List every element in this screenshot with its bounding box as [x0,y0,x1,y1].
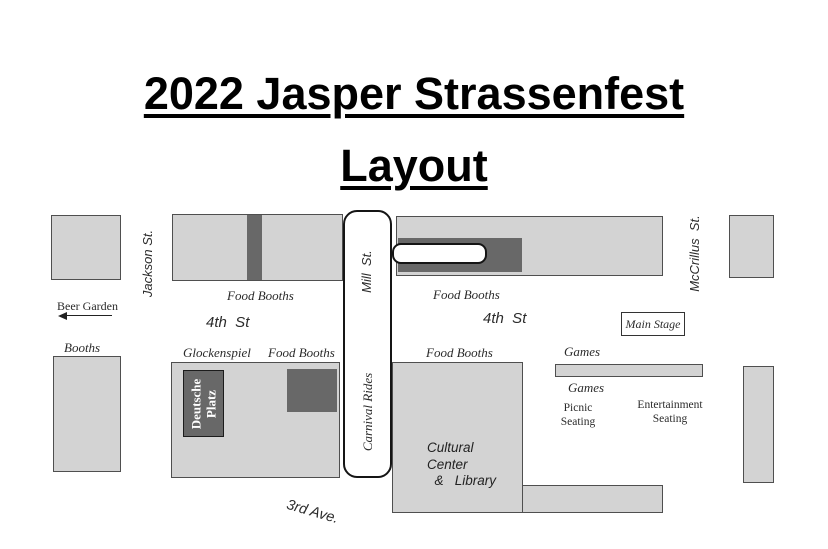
carnival-rides-label: Carnival Rides [360,372,376,450]
main-stage-label: Main Stage [626,317,681,332]
deutsche-platz-block: Deutsche Platz [171,362,340,478]
entertainment-seating-label: Entertainment Seating [634,399,706,426]
third-ave-label: 3rd Ave. [285,497,341,527]
strassenfest-layout-map: 2022 Jasper Strassenfest Layout Deutsche… [0,0,828,549]
block-top-right [729,215,774,278]
fourth-st-label-west: 4th St [206,314,249,331]
games-strip-block [555,364,703,377]
booths-label: Booths [64,340,100,356]
booths-block-bottom-left [53,356,121,472]
left-arrow-icon [58,312,67,320]
parade-float-marker [392,243,487,264]
fourth-st-label-east: 4th St [483,310,526,327]
title-line-1: 2022 Jasper Strassenfest [0,58,828,130]
food-booths-label-nw: Food Booths [227,288,294,304]
food-booths-label-se: Food Booths [426,345,493,361]
arrow-shaft [65,315,112,316]
page-title: 2022 Jasper Strassenfest Layout [0,58,828,202]
title-line-2: Layout [0,130,828,202]
games-label-south: Games [568,380,604,396]
picnic-seating-label: Picnic Seating [556,401,600,429]
right-vertical-block [743,366,774,483]
stage-dark-block-south [287,369,337,412]
mill-st-label: Mill St. [359,250,374,293]
divider-dark-stripe [247,215,262,280]
bottom-right-bar-block [522,485,663,513]
jackson-st-label: Jackson St. [141,229,156,296]
cultural-center-label: Cultural Center & Library [427,440,496,490]
mccrillus-st-label: McCrillus St. [687,215,702,292]
deutsche-platz-label: Deutsche Platz [189,378,219,429]
food-booths-block-west [172,214,343,281]
deutsche-platz-sign: Deutsche Platz [183,370,224,437]
main-stage-box: Main Stage [621,312,685,336]
glockenspiel-label: Glockenspiel [183,345,251,361]
food-booths-label-sw: Food Booths [268,345,335,361]
booths-block-top-left [51,215,121,280]
cultural-center-block: Cultural Center & Library [392,362,523,513]
games-label-north: Games [564,344,600,360]
food-booths-label-ne: Food Booths [433,287,500,303]
